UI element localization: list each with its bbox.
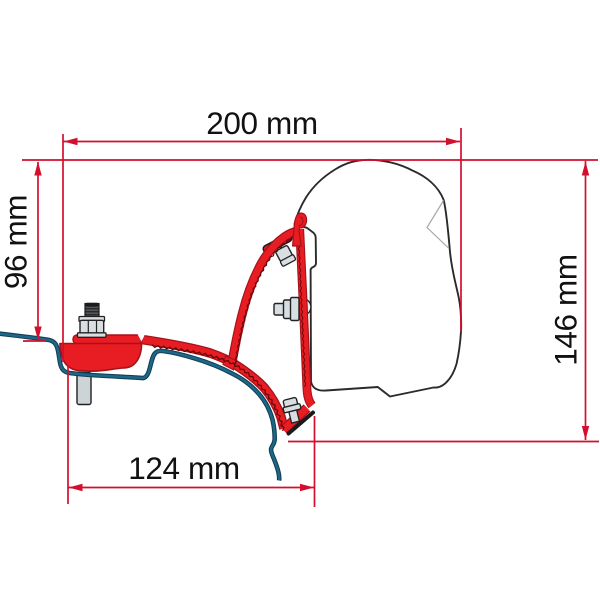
svg-text:96 mm: 96 mm — [0, 195, 34, 289]
svg-text:200 mm: 200 mm — [206, 105, 317, 141]
svg-text:124 mm: 124 mm — [128, 450, 239, 486]
svg-text:146 mm: 146 mm — [548, 254, 584, 365]
